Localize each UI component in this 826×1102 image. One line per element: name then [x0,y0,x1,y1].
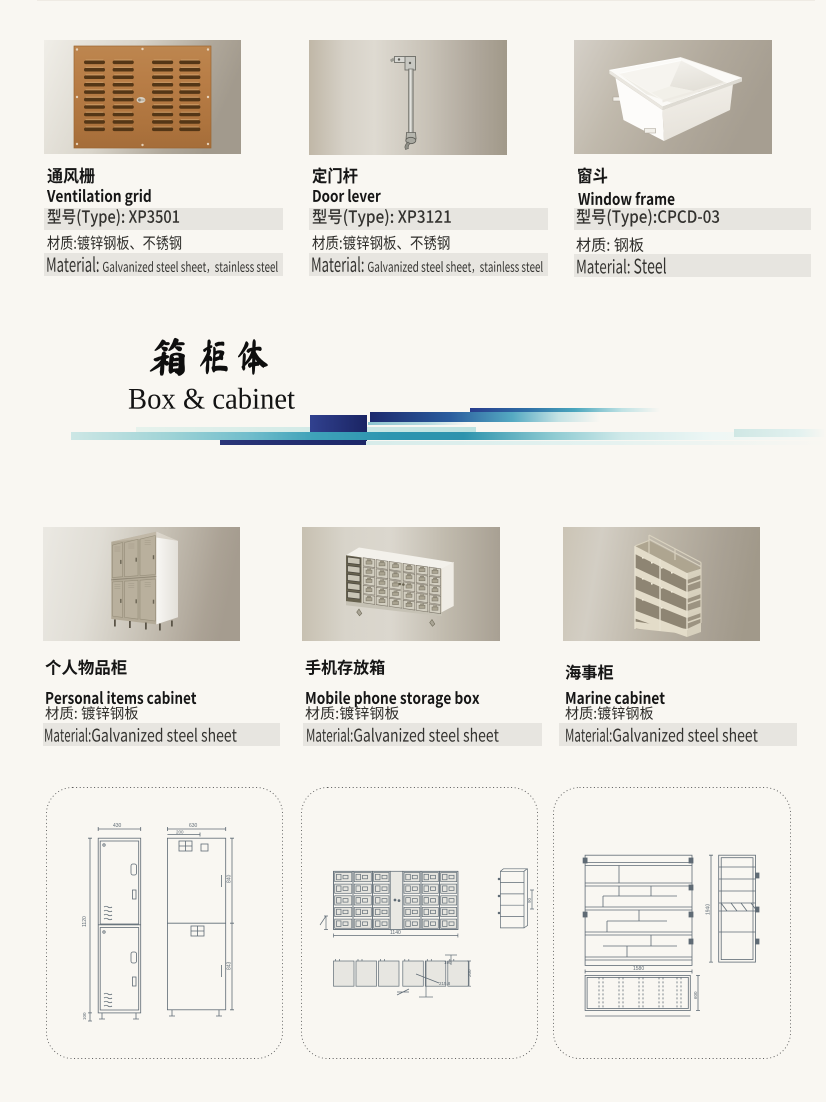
svg-text:1940: 1940 [706,904,712,915]
svg-text:1140: 1140 [390,930,401,936]
svg-text:840: 840 [227,874,233,883]
svg-text:1120: 1120 [82,916,88,927]
svg-text:100: 100 [82,1012,87,1020]
svg-text:200: 200 [467,969,472,977]
svg-text:600: 600 [693,991,698,999]
svg-text:843: 843 [227,961,233,970]
svg-text:90: 90 [527,897,532,903]
svg-text:200: 200 [176,830,184,835]
svg-text:630: 630 [189,823,198,829]
svg-text:1580: 1580 [633,966,644,972]
svg-text:190: 190 [444,960,452,965]
svg-text:430: 430 [113,823,122,829]
svg-text:215.8: 215.8 [439,981,451,986]
